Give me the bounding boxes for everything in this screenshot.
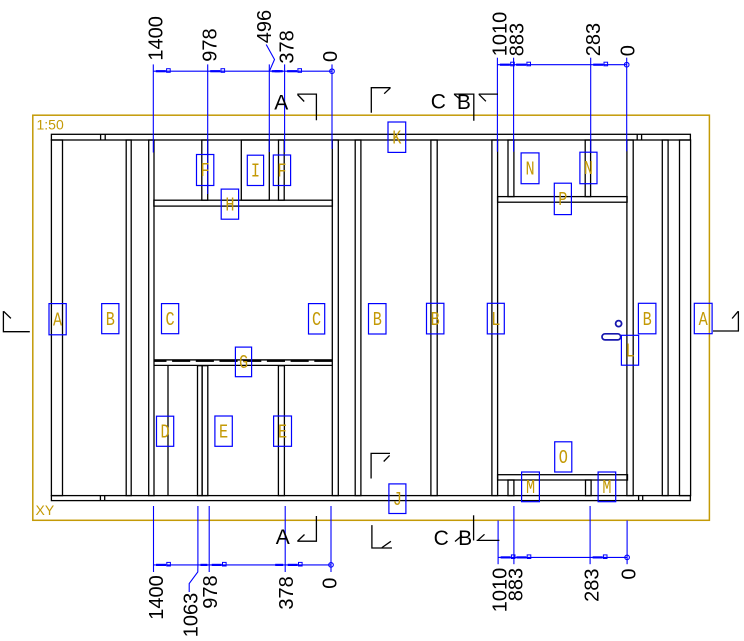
svg-text:0: 0 (320, 578, 342, 589)
svg-text:P: P (558, 191, 567, 212)
svg-text:B: B (643, 310, 652, 331)
svg-text:D: D (161, 423, 170, 444)
svg-text:E: E (219, 423, 228, 444)
svg-text:1:50: 1:50 (37, 117, 64, 133)
svg-text:O: O (559, 449, 568, 470)
svg-text:1063: 1063 (181, 593, 203, 638)
svg-text:C: C (434, 527, 449, 550)
svg-text:C: C (312, 311, 321, 332)
svg-text:H: H (225, 196, 234, 217)
svg-text:A: A (274, 92, 288, 115)
svg-text:M: M (526, 479, 535, 500)
svg-text:N: N (584, 160, 593, 181)
svg-text:496: 496 (254, 10, 276, 43)
svg-text:M: M (602, 479, 611, 500)
svg-text:C: C (166, 311, 175, 332)
svg-text:XY: XY (36, 502, 55, 518)
svg-text:N: N (525, 160, 534, 181)
svg-text:B: B (373, 311, 382, 332)
svg-text:A: A (53, 311, 63, 332)
svg-text:883: 883 (507, 23, 529, 56)
svg-text:L: L (625, 342, 634, 363)
svg-text:283: 283 (583, 23, 605, 56)
svg-text:B: B (458, 527, 472, 550)
svg-text:0: 0 (320, 51, 342, 62)
svg-text:G: G (239, 354, 248, 375)
svg-text:L: L (491, 310, 500, 331)
svg-text:A: A (699, 310, 709, 331)
svg-text:B: B (431, 310, 440, 331)
svg-text:0: 0 (618, 45, 640, 56)
svg-text:B: B (106, 311, 115, 332)
svg-text:E: E (278, 423, 287, 444)
svg-text:I: I (251, 162, 260, 183)
svg-text:0: 0 (619, 568, 641, 579)
svg-text:378: 378 (276, 30, 298, 63)
svg-text:378: 378 (276, 576, 298, 609)
svg-text:C: C (431, 91, 446, 114)
svg-text:978: 978 (199, 28, 221, 61)
svg-text:F: F (277, 162, 286, 183)
svg-text:K: K (392, 129, 402, 150)
svg-text:283: 283 (582, 569, 604, 602)
svg-text:1400: 1400 (146, 575, 168, 620)
svg-text:J: J (393, 491, 402, 512)
svg-text:1400: 1400 (145, 16, 167, 61)
svg-text:A: A (276, 526, 290, 549)
svg-text:978: 978 (200, 575, 222, 608)
svg-text:883: 883 (505, 568, 527, 601)
svg-text:F: F (201, 162, 210, 183)
